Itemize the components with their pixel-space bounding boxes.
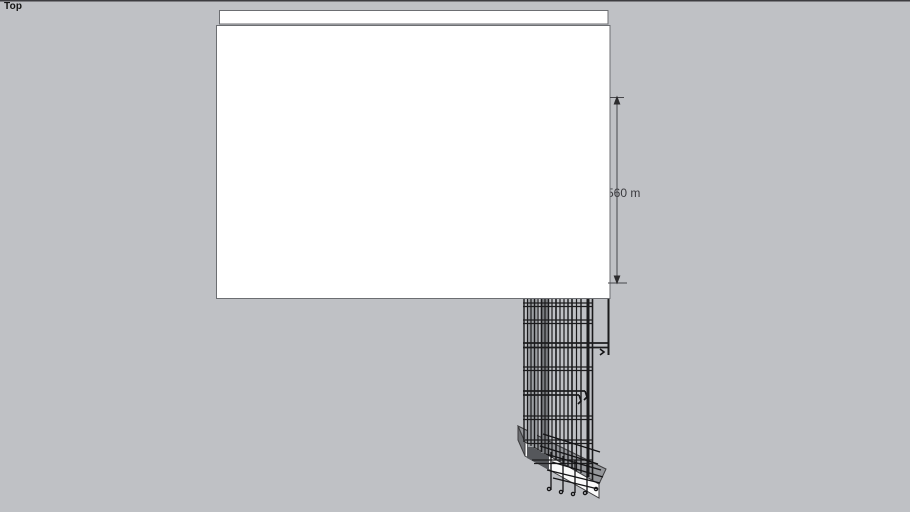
column-face-light	[528, 299, 537, 447]
dimension-label: 560 m	[607, 186, 640, 200]
viewport-top-edge	[0, 0, 910, 2]
wall-cap-face[interactable]	[220, 11, 609, 25]
view-name-label: Top	[4, 1, 22, 12]
scene-canvas[interactable]: 560 m	[0, 0, 910, 512]
wall-face[interactable]	[217, 26, 611, 299]
modeling-viewport[interactable]: 560 m	[0, 0, 910, 512]
